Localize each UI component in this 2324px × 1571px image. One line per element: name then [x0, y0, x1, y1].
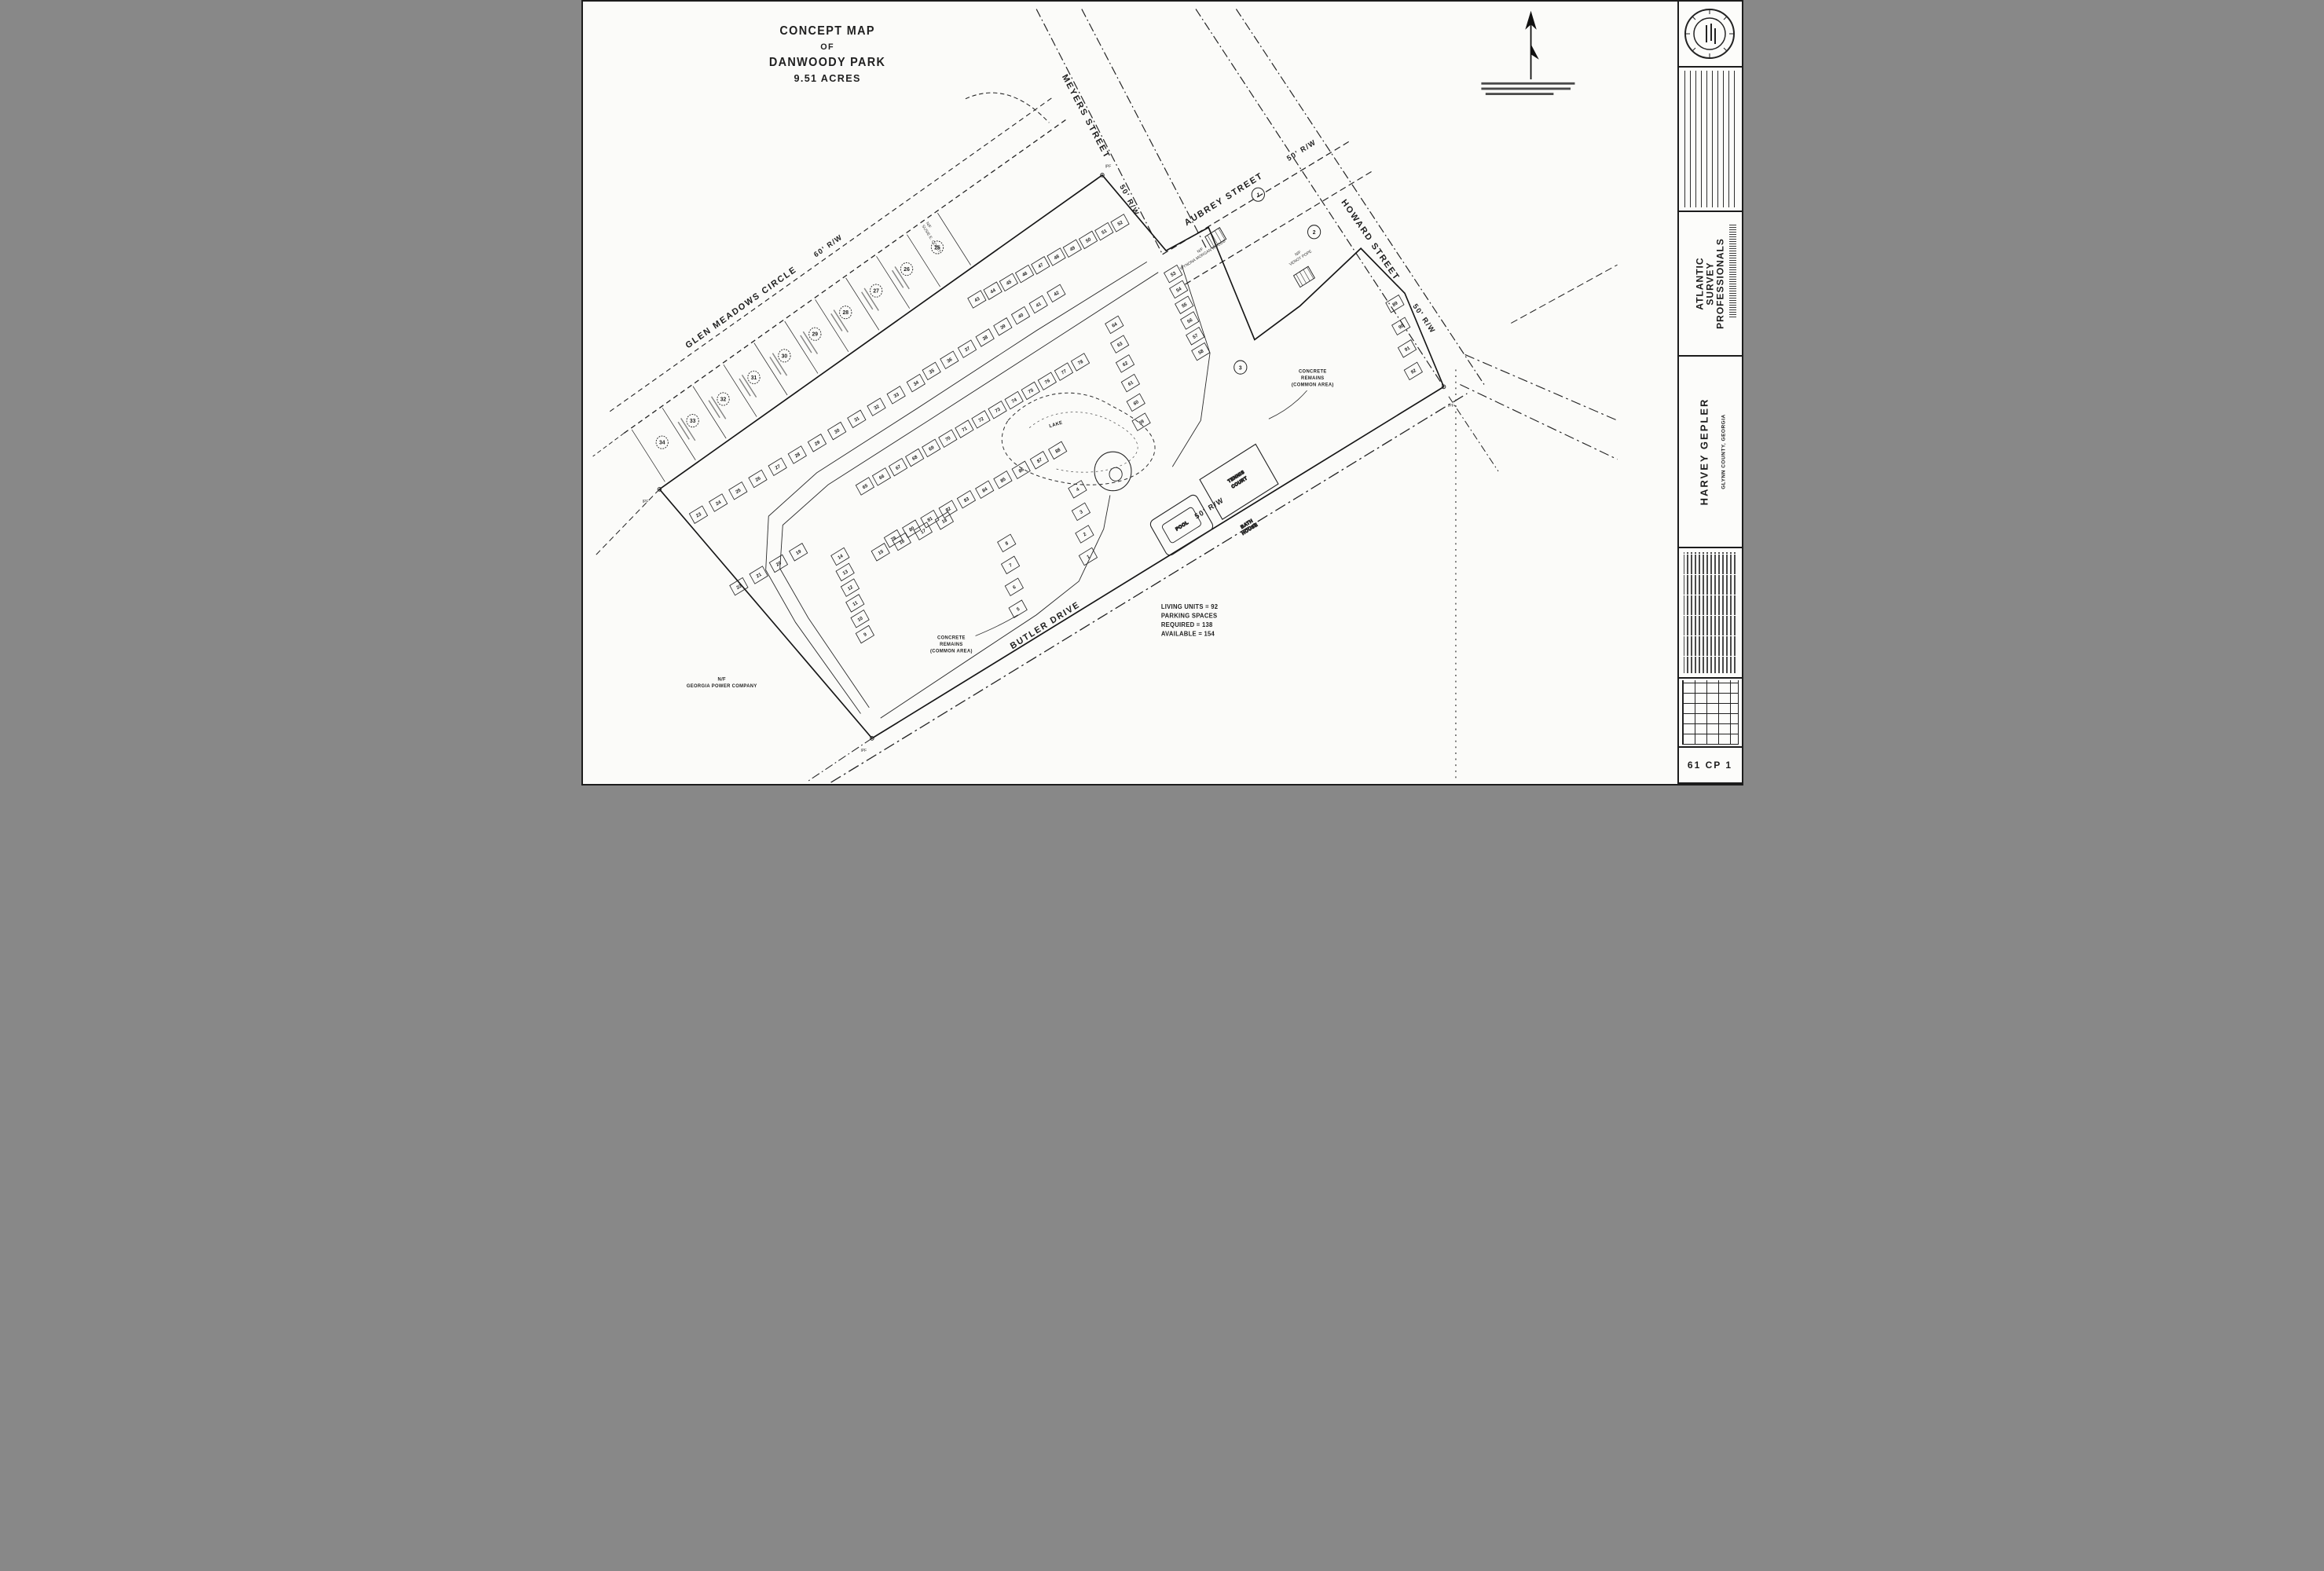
glen-meadows-lot-33: 33: [686, 414, 698, 427]
row-label-aubrey: 50' R/W: [1285, 138, 1318, 163]
unit-lot-number: 62: [1122, 361, 1129, 368]
unit-lot-71: 71: [955, 420, 973, 438]
unit-lot-number: 65: [862, 483, 869, 490]
firm-address-lines: [1729, 223, 1736, 317]
pool-label: POOL: [1175, 521, 1189, 533]
unit-lot-30: 30: [827, 422, 845, 439]
glen-meadows-lot-28: 28: [839, 306, 851, 319]
unit-lot-10: 10: [851, 610, 869, 628]
unit-lot-number: 31: [853, 416, 860, 423]
concrete-remains-labels: CONCRETE REMAINS (COMMON AREA) CONCRETE …: [929, 369, 1333, 654]
unit-lot-54: 54: [1169, 280, 1187, 298]
adjoiner-venoy: VENOY POPE: [1288, 249, 1313, 267]
unit-lot-number: 29: [814, 440, 821, 447]
unit-lot-number: 60: [1133, 400, 1140, 407]
unit-lot-number: 43: [973, 296, 981, 303]
unit-lot-number: 42: [1053, 291, 1060, 298]
unit-lot-21: 21: [750, 566, 768, 584]
unit-lot-number: 2: [1083, 532, 1087, 537]
adjoiner-labels: N/F GEORGIA POWER COMPANY N/F WYNONA MOR…: [686, 188, 1320, 689]
unit-lot-58: 58: [1191, 342, 1209, 360]
unit-lot-62: 62: [1116, 355, 1134, 372]
glen-meadows-fan-lots: 34333231302928272625: [632, 213, 970, 482]
unit-lot-64: 64: [1105, 316, 1123, 333]
unit-lot-number: 26: [754, 476, 761, 483]
unit-lot-number: 90: [1398, 324, 1405, 331]
unit-lot-87: 87: [1030, 452, 1048, 469]
unit-lot-number: 88: [1054, 448, 1061, 455]
corner-monuments: [658, 174, 1446, 741]
unit-lot-17: 17: [914, 522, 932, 540]
unit-lot-9: 9: [856, 625, 874, 643]
unit-lot-number: 35: [928, 368, 935, 375]
unit-lot-47: 47: [1031, 257, 1049, 274]
project-location: GLYNN COUNTY, GEORGIA: [1721, 414, 1727, 489]
plan-title-line3: DANWOODY PARK: [768, 57, 885, 69]
unit-lot-number: 27: [774, 464, 781, 471]
unit-lot-80: 80: [902, 520, 920, 537]
unit-lot-number: 6: [1012, 584, 1017, 590]
glen-meadows-lot-number: 28: [842, 310, 849, 316]
unit-lot-32: 32: [867, 398, 885, 416]
unit-lot-49: 49: [1063, 240, 1081, 257]
unit-lot-43: 43: [967, 291, 985, 308]
unit-lot-number: 92: [1410, 368, 1417, 375]
ruled-block: [1679, 68, 1742, 212]
unit-lot-number: 69: [928, 445, 935, 452]
unit-lot-number: 68: [911, 455, 918, 462]
stats-note: LIVING UNITS = 92 PARKING SPACES REQUIRE…: [1160, 603, 1218, 638]
firm-name-line3: PROFESSIONALS: [1715, 238, 1725, 329]
unit-lot-12: 12: [841, 579, 859, 596]
unit-lot-84: 84: [975, 481, 993, 498]
unit-lot-20: 20: [769, 555, 787, 572]
adjoiner-lot-number-2: 2: [1312, 230, 1315, 236]
unit-lot-number: 5: [1016, 606, 1021, 612]
unit-lot-2: 2: [1075, 525, 1093, 543]
stats-line1: LIVING UNITS = 92: [1160, 603, 1218, 610]
unit-lot-13: 13: [836, 563, 854, 580]
unit-lot-number: 89: [1391, 301, 1398, 308]
unit-lot-number: 81: [926, 516, 933, 523]
unit-lot-57: 57: [1186, 328, 1204, 345]
unit-lot-number: 34: [913, 380, 920, 387]
unit-lot-39: 39: [993, 318, 1011, 335]
unit-lot-40: 40: [1011, 306, 1029, 324]
cul-de-sac: [1094, 452, 1131, 491]
unit-lot-25: 25: [728, 482, 746, 500]
unit-lot-51: 51: [1094, 222, 1113, 240]
concrete-remains-south-line1: CONCRETE: [937, 635, 966, 640]
glen-meadows-lot-32: 32: [717, 393, 728, 405]
plan-drawing: CONCEPT MAP OF DANWOODY PARK 9.51 ACRES: [583, 2, 1679, 784]
plan-title-line4: 9.51 ACRES: [794, 72, 860, 84]
unit-lot-number: 78: [1077, 359, 1084, 366]
unit-lot-70: 70: [938, 430, 956, 447]
unit-lot-number: 87: [1036, 457, 1043, 464]
street-lines: [592, 9, 1617, 783]
unit-lot-number: 4: [1076, 487, 1080, 493]
lake: LAKE: [1002, 393, 1155, 485]
unit-lot-6: 6: [1005, 578, 1023, 595]
unit-lot-35: 35: [922, 362, 940, 379]
unit-lot-number: 21: [755, 572, 762, 579]
unit-lot-number: 91: [1404, 346, 1411, 353]
row-label-glen-meadows: 60' R/W: [812, 233, 844, 258]
glen-meadows-lot-number: 33: [689, 419, 695, 424]
unit-lot-37: 37: [958, 340, 976, 357]
unit-lot-number: 33: [893, 392, 900, 399]
pipe-markers: IPF IPF IPF IPF: [642, 164, 1453, 753]
unit-lot-number: 20: [775, 561, 783, 568]
unit-lot-number: 66: [878, 474, 885, 481]
unit-lot-89: 89: [1385, 295, 1403, 313]
firm-name-line2: SURVEY: [1705, 238, 1715, 329]
unit-lot-42: 42: [1047, 284, 1065, 302]
glen-meadows-lot-number: 25: [934, 245, 940, 251]
unit-lot-56: 56: [1180, 312, 1198, 329]
unit-lot-45: 45: [999, 273, 1017, 291]
unit-lot-number: 46: [1021, 271, 1028, 278]
unit-lot-4: 4: [1068, 481, 1086, 498]
unit-lot-number: 19: [795, 549, 802, 556]
adjoiner-georgia-power-nf: N/F: [717, 677, 726, 682]
unit-lot-number: 11: [852, 600, 859, 607]
glen-meadows-lot-26: 26: [900, 262, 912, 275]
street-label-howard: HOWARD STREET: [1339, 198, 1401, 283]
unit-lot-number: 59: [1138, 419, 1145, 427]
unit-lot-number: 9: [863, 632, 867, 638]
unit-lot-number: 74: [1010, 397, 1017, 405]
unit-lot-number: 44: [989, 288, 996, 295]
glen-meadows-lot-30: 30: [778, 350, 790, 362]
unit-lot-50: 50: [1079, 231, 1097, 248]
unit-lot-28: 28: [788, 446, 806, 463]
unit-lot-number: 28: [794, 452, 801, 459]
unit-lot-79: 79: [884, 529, 902, 547]
unit-lots-layer: 2324252627282930313233343536373839404142…: [689, 214, 1422, 643]
plan-title: CONCEPT MAP OF DANWOODY PARK 9.51 ACRES: [768, 25, 885, 84]
unit-lot-number: 72: [977, 416, 984, 423]
unit-lot-number: 36: [946, 357, 953, 364]
unit-lot-77: 77: [1054, 363, 1072, 380]
unit-lot-number: 13: [841, 569, 849, 577]
internal-roads: [765, 262, 1209, 718]
unit-lot-number: 38: [981, 335, 988, 342]
unit-lot-number: 73: [994, 407, 1001, 414]
glen-meadows-lot-number: 34: [658, 441, 665, 446]
unit-lot-number: 63: [1116, 341, 1124, 348]
unit-lot-number: 58: [1197, 349, 1204, 356]
unit-lot-16: 16: [893, 533, 911, 550]
unit-lot-number: 12: [847, 585, 854, 592]
street-label-meyers: MEYERS STREET: [1060, 73, 1112, 161]
pipe-marker-sw: IPF: [642, 500, 648, 504]
concrete-remains-east-line1: CONCRETE: [1298, 369, 1326, 374]
unit-lot-number: 22: [735, 584, 742, 591]
unit-lot-72: 72: [971, 411, 989, 428]
stats-line4: AVAILABLE = 154: [1160, 630, 1215, 637]
unit-lot-38: 38: [976, 329, 994, 346]
unit-lot-76: 76: [1038, 372, 1056, 390]
adjoiner-lot-number-1: 1: [1256, 192, 1259, 198]
unit-lot-number: 50: [1085, 237, 1092, 244]
unit-lot-number: 17: [920, 529, 927, 536]
adjoiner-lot-number-3: 3: [1238, 365, 1241, 371]
unit-lot-8: 8: [997, 534, 1015, 551]
unit-lot-number: 52: [1116, 220, 1124, 227]
unit-lot-number: 70: [944, 436, 951, 443]
unit-lot-24: 24: [709, 494, 727, 511]
unit-lot-61: 61: [1121, 374, 1139, 391]
unit-lot-91: 91: [1398, 340, 1416, 357]
unit-lot-number: 67: [895, 464, 902, 471]
fan-lot-line: [632, 430, 665, 482]
pipe-marker-s: IPF: [860, 749, 867, 753]
glen-meadows-lot-number: 32: [720, 397, 726, 402]
concrete-remains-south-line2: REMAINS: [940, 643, 963, 647]
unit-lot-60: 60: [1127, 394, 1145, 411]
street-labels: GLEN MEADOWS CIRCLE 60' R/W MEYERS STREE…: [684, 73, 1437, 652]
title-block: ATLANTIC SURVEY PROFESSIONALS HARVEY GEP…: [1677, 2, 1742, 784]
glen-meadows-lot-29: 29: [808, 328, 820, 340]
unit-lot-number: 32: [873, 404, 880, 411]
unit-lot-number: 86: [1017, 467, 1025, 474]
unit-lot-number: 55: [1181, 302, 1188, 309]
unit-lot-number: 56: [1186, 317, 1193, 324]
unit-lot-number: 49: [1069, 246, 1076, 253]
unit-lot-number: 8: [1004, 541, 1009, 547]
unit-lot-number: 7: [1008, 563, 1013, 569]
unit-lot-number: 75: [1028, 388, 1035, 395]
unit-lot-number: 71: [961, 426, 968, 433]
unit-lot-59: 59: [1131, 413, 1149, 430]
unit-lot-1: 1: [1079, 547, 1097, 565]
row-label-meyers: 50' R/W: [1118, 183, 1141, 217]
unit-lot-69: 69: [922, 439, 940, 456]
unit-lot-27: 27: [768, 458, 786, 475]
unit-lot-number: 39: [999, 324, 1006, 331]
unit-lot-29: 29: [808, 434, 826, 452]
plan-title-line1: CONCEPT MAP: [779, 25, 874, 38]
unit-lot-73: 73: [988, 401, 1006, 419]
unit-lot-number: 40: [1017, 313, 1025, 320]
unit-lot-number: 41: [1036, 302, 1043, 309]
unit-lot-number: 79: [890, 536, 897, 543]
unit-lot-11: 11: [845, 595, 863, 612]
pipe-marker-n: IPF: [1105, 164, 1111, 169]
unit-lot-number: 24: [715, 500, 722, 507]
glen-meadows-lot-34: 34: [656, 436, 668, 449]
fan-lot-line: [937, 213, 970, 265]
unit-lot-number: 53: [1170, 271, 1177, 278]
unit-lot-14: 14: [830, 547, 849, 565]
unit-lot-75: 75: [1021, 382, 1039, 399]
firm-section: ATLANTIC SURVEY PROFESSIONALS: [1679, 212, 1742, 357]
unit-lot-55: 55: [1175, 296, 1193, 313]
unit-lot-number: 15: [878, 549, 885, 556]
unit-lot-number: 30: [834, 428, 841, 435]
unit-lot-68: 68: [905, 449, 923, 466]
unit-lot-number: 83: [963, 496, 970, 504]
glen-meadows-lot-number: 30: [781, 353, 787, 359]
firm-name-line1: ATLANTIC: [1695, 238, 1705, 329]
unit-lot-number: 84: [981, 487, 988, 494]
unit-lot-74: 74: [1005, 391, 1023, 408]
lake-label: LAKE: [1048, 420, 1062, 429]
unit-lot-92: 92: [1404, 362, 1422, 379]
unit-lot-26: 26: [748, 470, 766, 487]
unit-lot-number: 51: [1101, 229, 1108, 236]
plan-title-line2: OF: [820, 42, 834, 52]
unit-lot-36: 36: [940, 351, 958, 368]
pipe-marker-e: IPF: [1448, 404, 1454, 408]
client-name: HARVEY GEPLER: [1698, 398, 1710, 506]
unit-lot-number: 16: [899, 539, 906, 546]
unit-lot-number: 76: [1044, 379, 1051, 386]
glen-meadows-lot-number: 27: [873, 288, 879, 294]
unit-lot-22: 22: [729, 577, 747, 595]
unit-lot-46: 46: [1015, 265, 1033, 282]
unit-lot-88: 88: [1048, 441, 1066, 459]
stats-line3: REQUIRED = 138: [1160, 621, 1212, 628]
survey-sheet: CONCEPT MAP OF DANWOODY PARK 9.51 ACRES: [581, 0, 1743, 785]
client-section: HARVEY GEPLER GLYNN COUNTY, GEORGIA: [1679, 357, 1742, 548]
unit-lot-number: 57: [1192, 333, 1199, 340]
unit-lot-number: 82: [945, 507, 952, 514]
unit-lot-number: 10: [856, 616, 863, 623]
adjoiner-georgia-power: GEORGIA POWER COMPANY: [686, 684, 757, 689]
unit-lot-number: 37: [964, 346, 971, 353]
unit-lot-number: 47: [1037, 262, 1044, 269]
property-boundary: [659, 175, 1443, 738]
unit-lot-65: 65: [856, 478, 874, 495]
concrete-remains-east-line3: (COMMON AREA): [1291, 383, 1333, 387]
unit-lot-78: 78: [1071, 353, 1089, 371]
unit-lot-86: 86: [1012, 461, 1030, 478]
unit-lot-number: 18: [941, 518, 948, 525]
unit-lot-number: 77: [1061, 368, 1068, 375]
surveyor-note-lines: [1481, 82, 1574, 95]
glen-meadows-lot-27: 27: [870, 284, 882, 297]
unit-lot-48: 48: [1047, 248, 1065, 265]
unit-lot-63: 63: [1110, 335, 1128, 353]
unit-lot-7: 7: [1001, 556, 1019, 573]
unit-lot-number: 48: [1053, 254, 1060, 261]
glen-meadows-lot-number: 26: [904, 267, 910, 273]
unit-lot-5: 5: [1009, 600, 1027, 617]
unit-lot-67: 67: [889, 459, 907, 476]
unit-lot-number: 61: [1127, 380, 1135, 387]
unit-lot-number: 3: [1079, 510, 1083, 515]
concrete-remains-east-line2: REMAINS: [1301, 376, 1325, 381]
sheet-number: 61 CP 1: [1679, 748, 1742, 784]
revision-grid: [1682, 680, 1739, 745]
unit-lot-number: 25: [735, 488, 742, 495]
unit-lot-83: 83: [957, 491, 975, 508]
seal-icon: [1679, 2, 1740, 66]
unit-lot-15: 15: [871, 544, 889, 561]
unit-lot-3: 3: [1072, 503, 1090, 520]
notes-block: [1679, 548, 1742, 679]
unit-lot-number: 64: [1111, 322, 1118, 329]
glen-meadows-lot-number: 29: [812, 332, 818, 338]
unit-lot-34: 34: [907, 374, 925, 391]
concrete-remains-south-line3: (COMMON AREA): [929, 649, 972, 654]
unit-lot-number: 45: [1006, 280, 1013, 287]
glen-meadows-lot-number: 31: [750, 375, 757, 381]
unit-lot-31: 31: [847, 410, 865, 427]
unit-lot-66: 66: [872, 468, 890, 485]
unit-lot-85: 85: [993, 471, 1011, 489]
north-arrow-icon: [1526, 12, 1538, 79]
stats-line2: PARKING SPACES: [1160, 612, 1217, 619]
unit-lot-19: 19: [789, 544, 807, 561]
unit-lot-number: 14: [837, 554, 844, 561]
unit-lot-33: 33: [887, 386, 905, 404]
unit-lot-90: 90: [1391, 317, 1409, 335]
unit-lot-number: 23: [695, 512, 702, 519]
street-label-glen-meadows: GLEN MEADOWS CIRCLE: [684, 265, 798, 350]
unit-lot-number: 54: [1175, 287, 1182, 294]
unit-lot-41: 41: [1029, 295, 1047, 313]
surveyor-seal-section: [1679, 2, 1742, 68]
unit-lot-82: 82: [939, 500, 957, 518]
glen-meadows-lot-31: 31: [747, 371, 759, 383]
unit-lot-number: 85: [999, 477, 1006, 484]
unit-lot-23: 23: [689, 506, 707, 523]
unit-lot-52: 52: [1110, 214, 1128, 232]
unit-lot-44: 44: [984, 282, 1002, 299]
